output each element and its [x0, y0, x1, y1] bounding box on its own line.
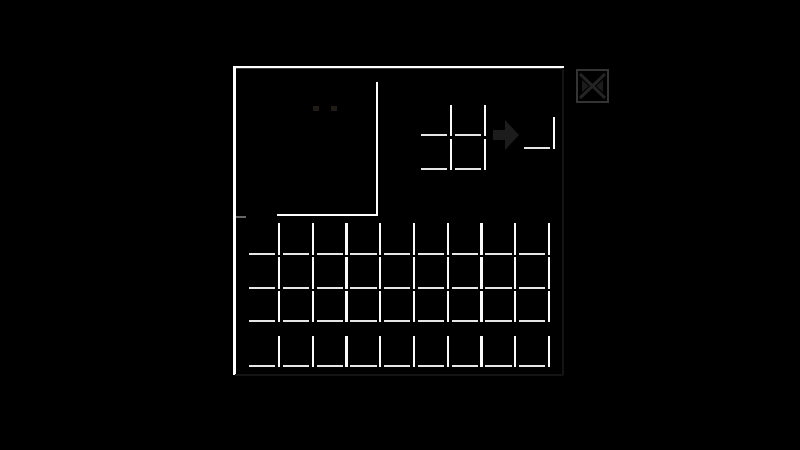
crafting-slot[interactable]: [452, 103, 486, 137]
slot-highlight-right: [548, 336, 550, 368]
slot-highlight-right: [548, 223, 550, 255]
player-preview-box: [278, 82, 378, 216]
panel-right-shadow: [562, 68, 564, 375]
inventory-slot[interactable]: [449, 255, 483, 289]
inventory-slot[interactable]: [516, 221, 550, 255]
slot-highlight-bottom: [519, 365, 545, 367]
inventory-slot[interactable]: [449, 289, 483, 323]
panel-bottom-shadow: [235, 374, 563, 376]
hotbar-slot[interactable]: [314, 334, 348, 368]
slot-highlight-right: [548, 291, 550, 323]
hotbar-slot[interactable]: [483, 334, 517, 368]
crafting-arrow-icon: [493, 120, 519, 150]
hotbar-slot[interactable]: [415, 334, 449, 368]
inventory-slot[interactable]: [246, 289, 280, 323]
slot-highlight-bottom: [317, 365, 343, 367]
inventory-slot[interactable]: [348, 221, 382, 255]
inventory-slot[interactable]: [280, 221, 314, 255]
slot-highlight-right: [484, 139, 486, 171]
slot-highlight-bottom: [350, 365, 376, 367]
inventory-slot[interactable]: [314, 289, 348, 323]
inventory-slot[interactable]: [314, 255, 348, 289]
slot-highlight-bottom: [317, 320, 343, 322]
inventory-slot[interactable]: [348, 255, 382, 289]
slot-highlight-bottom: [283, 365, 309, 367]
slot-highlight-bottom: [455, 168, 481, 170]
slot-highlight-bottom: [452, 320, 478, 322]
inventory-slot[interactable]: [381, 289, 415, 323]
slot-highlight-right: [548, 257, 550, 289]
inventory-slot[interactable]: [483, 289, 517, 323]
slot-highlight-bottom: [384, 365, 410, 367]
inventory-slot[interactable]: [246, 255, 280, 289]
crafting-slot[interactable]: [418, 136, 452, 170]
armor-slot-edge: [236, 216, 246, 218]
slot-highlight-bottom: [249, 365, 275, 367]
inventory-slot[interactable]: [314, 221, 348, 255]
crafting-result-slot[interactable]: [521, 115, 555, 149]
inventory-slot[interactable]: [381, 221, 415, 255]
crafting-slot[interactable]: [418, 103, 452, 137]
inventory-slot[interactable]: [415, 221, 449, 255]
panel-left-highlight: [233, 66, 235, 376]
player-box-bottom-edge: [277, 214, 378, 216]
inventory-slot[interactable]: [348, 289, 382, 323]
crafting-slot[interactable]: [452, 136, 486, 170]
inventory-slot[interactable]: [246, 221, 280, 255]
arrow-head: [505, 120, 519, 150]
slot-highlight-right: [553, 117, 555, 149]
slot-highlight-bottom: [283, 320, 309, 322]
inventory-slot[interactable]: [516, 255, 550, 289]
x-pattern-icon: [576, 69, 609, 103]
hotbar-slot[interactable]: [381, 334, 415, 368]
inventory-slot[interactable]: [483, 255, 517, 289]
inventory-slot[interactable]: [415, 255, 449, 289]
hotbar-slot[interactable]: [516, 334, 550, 368]
slot-highlight-bottom: [485, 320, 511, 322]
inventory-slot[interactable]: [483, 221, 517, 255]
inventory-slot[interactable]: [415, 289, 449, 323]
hotbar-slot[interactable]: [449, 334, 483, 368]
inventory-slot[interactable]: [280, 255, 314, 289]
slot-highlight-bottom: [452, 365, 478, 367]
slot-highlight-bottom: [350, 320, 376, 322]
inventory-slot[interactable]: [280, 289, 314, 323]
corner-square-button[interactable]: [576, 69, 609, 103]
slot-highlight-bottom: [249, 320, 275, 322]
slot-highlight-bottom: [384, 320, 410, 322]
hotbar-slot[interactable]: [348, 334, 382, 368]
inventory-slot[interactable]: [381, 255, 415, 289]
slot-highlight-bottom: [418, 320, 444, 322]
inventory-screen: [0, 0, 800, 450]
inventory-slot[interactable]: [516, 289, 550, 323]
player-eye-right: [331, 106, 338, 112]
slot-highlight-bottom: [421, 168, 447, 170]
slot-highlight-bottom: [519, 320, 545, 322]
slot-highlight-right: [484, 105, 486, 137]
hotbar-slot[interactable]: [280, 334, 314, 368]
hotbar-slot[interactable]: [246, 334, 280, 368]
slot-highlight-bottom: [418, 365, 444, 367]
player-box-right-edge: [376, 82, 378, 216]
player-eye-left: [313, 106, 320, 112]
inventory-slot[interactable]: [449, 221, 483, 255]
slot-highlight-bottom: [485, 365, 511, 367]
slot-highlight-bottom: [524, 147, 550, 149]
panel-top-underline: [233, 68, 564, 69]
